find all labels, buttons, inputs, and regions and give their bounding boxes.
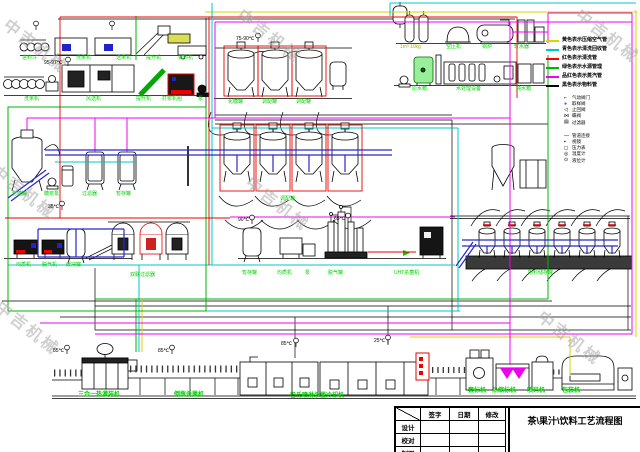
legend-symbol-glyph: ▪ [564,140,572,145]
design-row-header: 设计 [396,421,421,434]
pipe-legend-entry: 青色表示清洗回收管 [546,45,607,54]
pipe-legend-label: 品红色表示蒸汽管 [562,74,602,79]
pipe-legend-entry: 绿色表示水源管理 [546,63,607,72]
legend-symbol-label: 视镜 [572,140,581,145]
pipe-legend-entry: 红色表示清洗管 [546,54,607,63]
green-belt-elevator [140,70,164,95]
legend-symbol-glyph: — [564,134,572,139]
legend-symbol-label: 取样阀 [572,102,586,107]
draft-rev-cell [479,447,506,452]
pipe-color-swatch [546,76,559,78]
symbol-legend-group: ⌐气动阀门●取样阀◁止回阀⋈蝶阀▤过滤器 [564,95,590,126]
check-rev-cell [479,434,506,447]
pipe-legend-label: 青色表示清洗回收管 [562,47,607,52]
legend-symbol-label: 管道连接 [572,134,590,139]
check-row-header: 校对 [396,434,421,447]
sign-column-header: 签字 [421,408,450,421]
symbol-legend-entry: ⊙液位计 [564,158,590,164]
legend-symbol-glyph: ⊙ [564,158,572,163]
legend-symbol-label: 气动阀门 [572,96,590,101]
legend-symbol-label: 过滤器 [572,121,586,126]
draft-date-cell [450,447,479,452]
date-column-header: 日期 [450,408,479,421]
pipe-legend-entry: 黑色表示物料管 [546,81,607,90]
design-rev-cell [479,421,506,434]
pipe-legend-label: 黄色表示压缩空气管 [562,38,607,43]
drawing-title: 茶\果汁\饮料工艺流程图 [510,408,640,452]
pipe-legend-label: 黑色表示物料管 [562,83,597,88]
title-block-corner-cell [396,408,421,421]
legend-symbol-label: 液位计 [572,159,586,164]
check-date-cell [450,434,479,447]
pipe-legend-entry: 黄色表示压缩空气管 [546,36,607,45]
pipe-color-swatch [546,85,559,87]
design-sign-cell [421,421,450,434]
title-block-table: 签字 日期 修改 设计 校对 制图 [396,408,510,452]
pipe-legend-label: 红色表示清洗管 [562,56,597,61]
pipe-color-swatch [546,40,559,42]
legend-symbol-label: 压力表 [572,146,586,151]
machine-window [104,44,113,51]
title-block: 签字 日期 修改 设计 校对 制图 茶\果汁\饮料工艺流程图 [394,406,640,452]
pipe-legend-entry: 品红色表示蒸汽管 [546,72,607,81]
legend-symbol-glyph: ▤ [564,120,572,125]
symbol-legend: ⌐气动阀门●取样阀◁止回阀⋈蝶阀▤过滤器—管道连接▪视镜◻压力表◎温度计⊙液位计 [564,95,590,171]
pipe-color-swatch [546,67,559,69]
draft-sign-cell [421,447,450,452]
symbol-legend-entry: ▤过滤器 [564,120,590,126]
revision-column-header: 修改 [479,408,506,421]
design-date-cell [450,421,479,434]
pipe-color-swatch [546,58,559,60]
draft-row-header: 制图 [396,447,421,452]
process-diagram-drawing [0,0,640,452]
legend-symbol-glyph: ⌐ [564,96,572,101]
pipe-color-swatch [546,49,559,51]
pipe-color-legend: 黄色表示压缩空气管青色表示清洗回收管红色表示清洗管绿色表示水源管理品红色表示蒸汽… [546,36,607,90]
legend-symbol-label: 温度计 [572,152,586,157]
process-flow-diagram: 中吉机械 中吉机械 中吉机械 中吉机械 中吉机械 中吉机械 中吉机械 进料斗洗果… [0,0,640,452]
check-sign-cell [421,434,450,447]
symbol-legend-group: —管道连接▪视镜◻压力表◎温度计⊙液位计 [564,133,590,164]
legend-symbol-label: 蝶阀 [572,114,581,119]
pipe-legend-label: 绿色表示水源管理 [562,65,602,70]
